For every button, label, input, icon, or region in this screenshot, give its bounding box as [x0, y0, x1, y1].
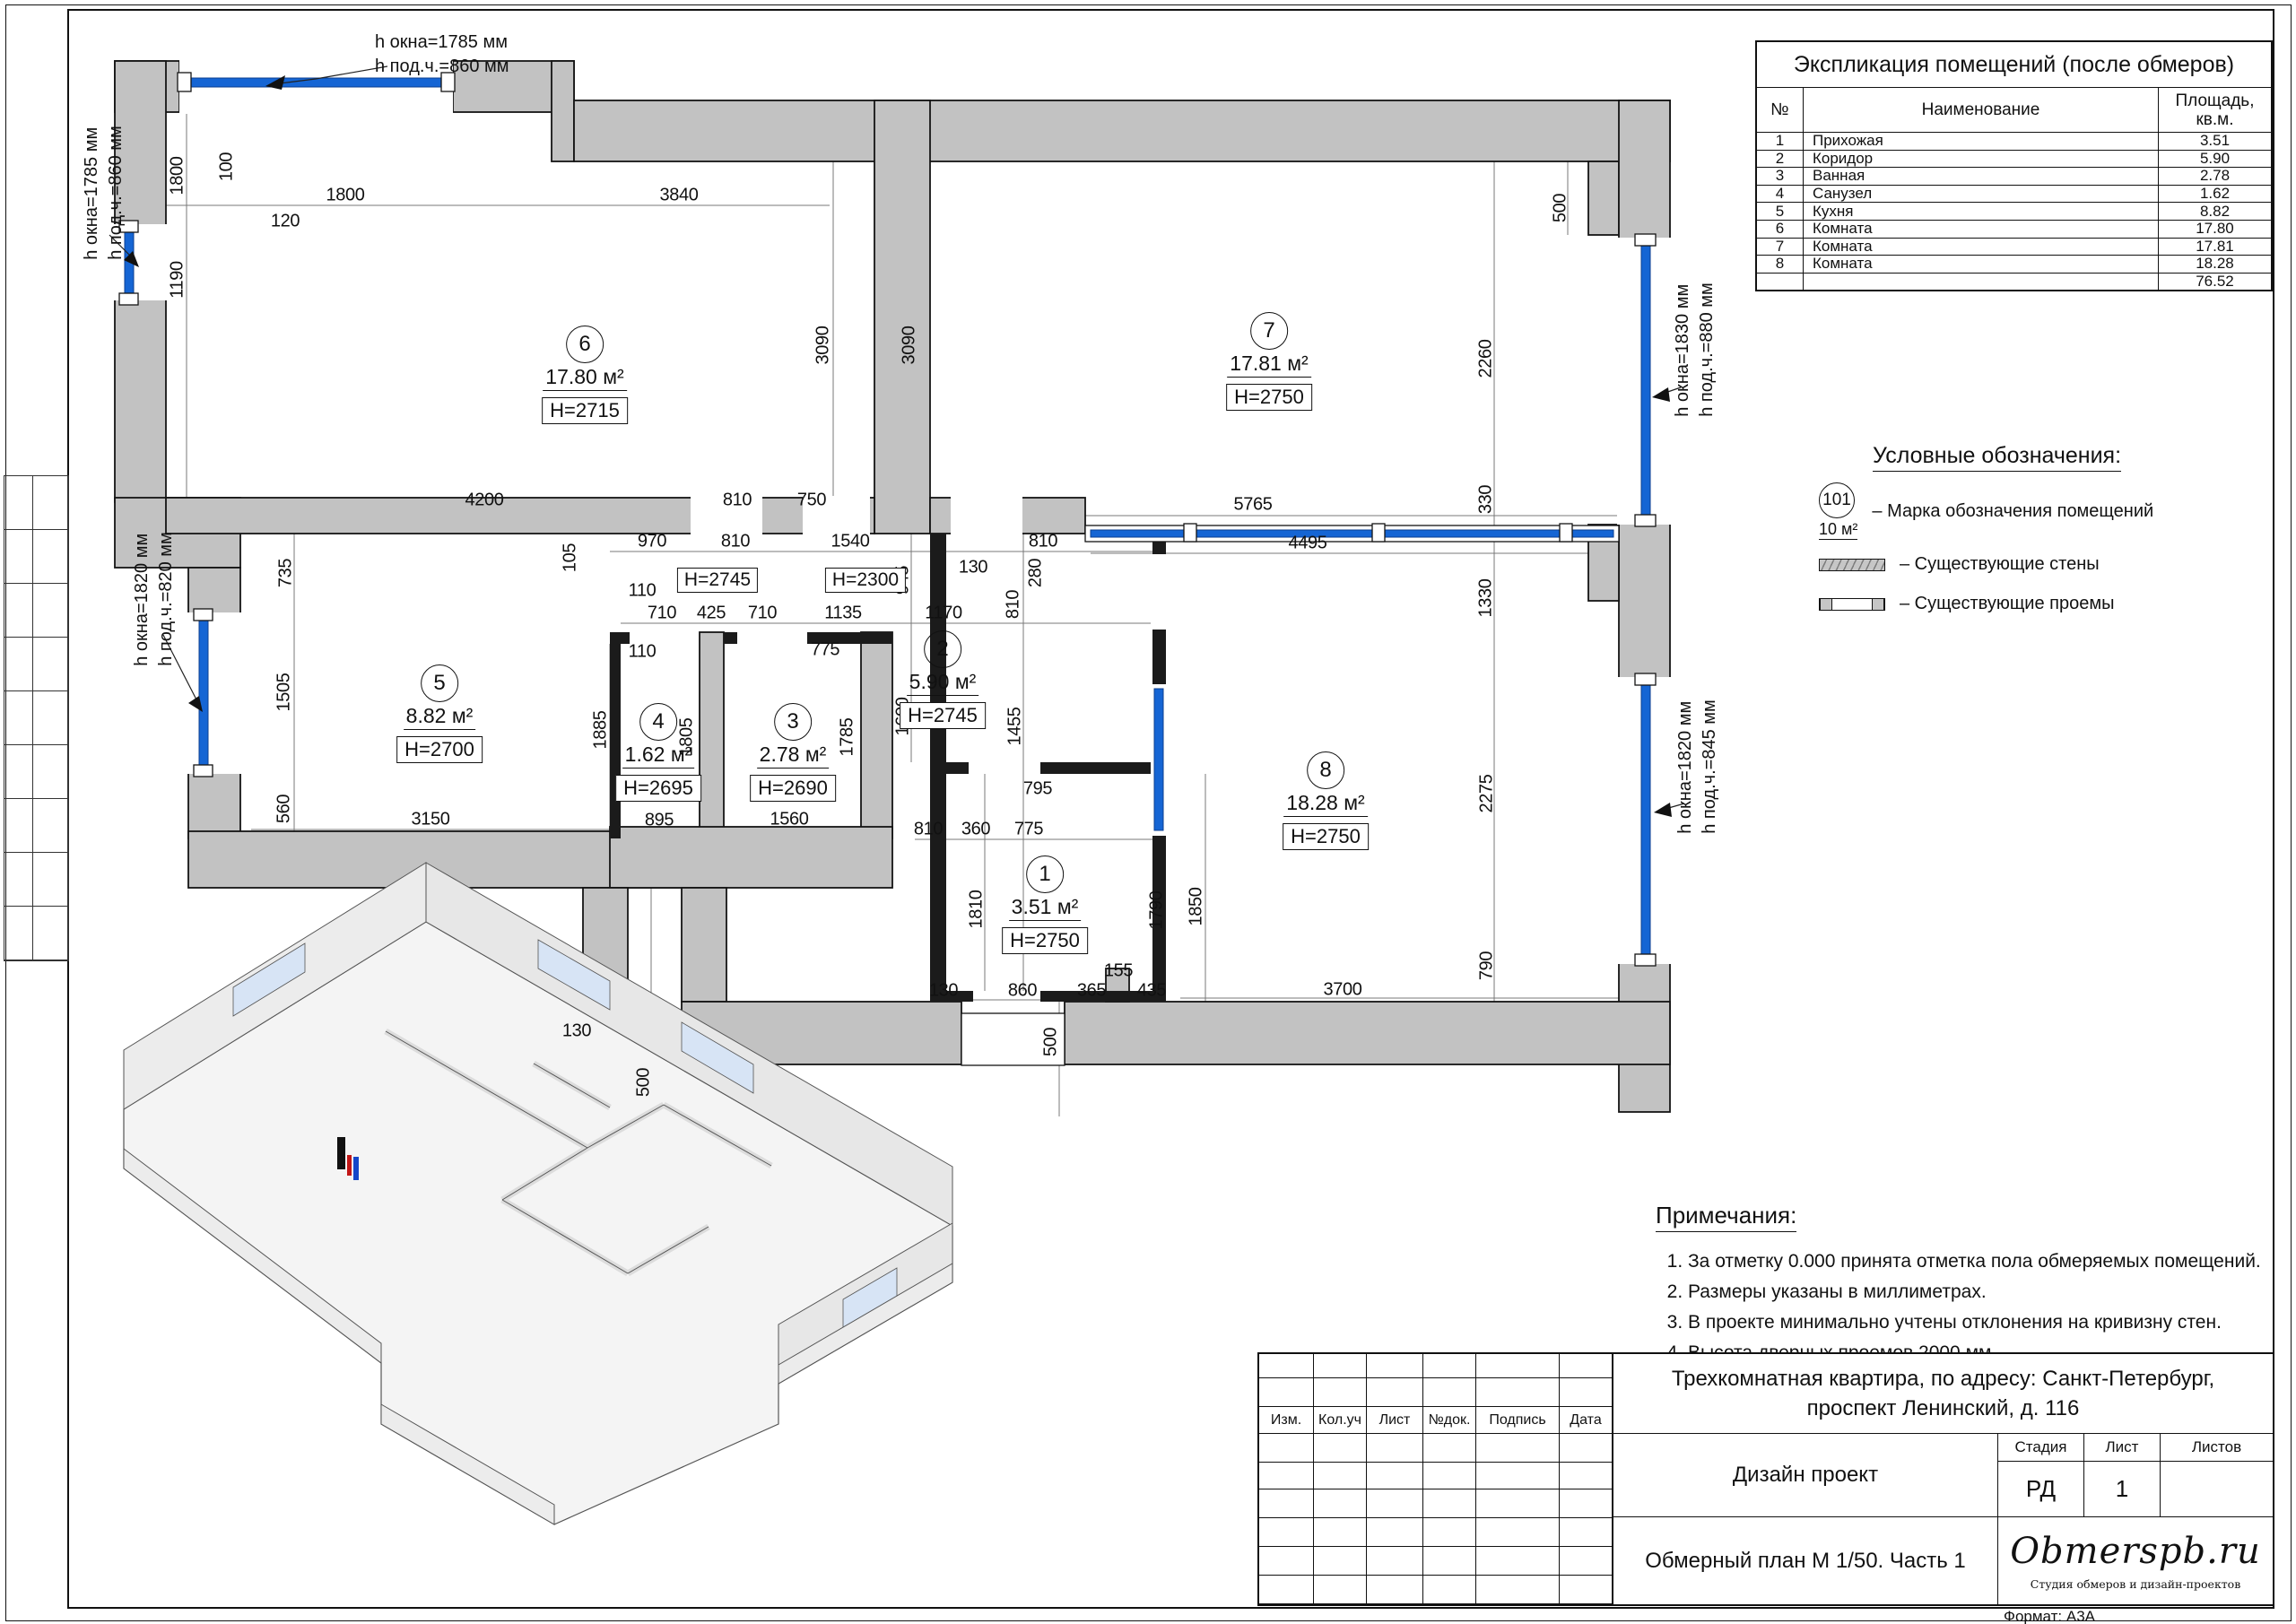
dimension-label: 3090 [900, 326, 920, 365]
window-note-line: h окна=1820 мм [1674, 699, 1698, 834]
cell-num: 2 [1757, 151, 1804, 169]
dimension-label: 1800 [326, 186, 365, 206]
dimension-label: 1190 [168, 261, 188, 298]
cell-area: 18.28 [2159, 256, 2271, 274]
revision-cell [1560, 1489, 1613, 1518]
dimension-label: 425 [697, 604, 726, 624]
dimension-label: 365 [1077, 981, 1106, 1002]
table-row: 2Коридор5.90 [1757, 151, 2271, 169]
cell-area: 2.78 [2159, 168, 2271, 186]
window-height-note: h окна=1785 ммh под.ч.=860 мм [375, 30, 509, 79]
revision-cell [1476, 1489, 1560, 1518]
room-label: 617.80 м²H=2715 [542, 326, 628, 424]
cell-name: Комната [1804, 239, 2159, 256]
sheets-label: Листов [2160, 1434, 2273, 1462]
studio-logo: Obmerspb.ru Студия обмеров и дизайн-прое… [1997, 1517, 2273, 1604]
revision-cell [1476, 1463, 1560, 1489]
dimension-label: 110 [629, 642, 657, 663]
revision-header-cell: Лист [1367, 1407, 1423, 1434]
cell-num: 4 [1757, 186, 1804, 204]
dimension-label: 5765 [1234, 495, 1273, 516]
room-height: H=2750 [1283, 823, 1369, 850]
dimension-label: 3090 [813, 326, 834, 365]
room-area: 3.51 м² [1009, 895, 1082, 921]
dimension-label: 810 [723, 491, 752, 511]
room-area: 5.90 м² [907, 670, 979, 696]
sheet-label: Лист [2083, 1434, 2160, 1462]
window-height-note: h окна=1820 ммh под.ч.=820 мм [130, 532, 178, 666]
dimension-label: 280 [1026, 559, 1047, 587]
revision-cell [1423, 1463, 1476, 1489]
revision-cell [1367, 1518, 1423, 1547]
room-number: 4 [639, 703, 677, 741]
notes-list: За отметку 0.000 принята отметка пола об… [1656, 1246, 2283, 1368]
table-total-row: 76.52 [1757, 274, 2271, 291]
format-label: Формат: А3А [2004, 1608, 2095, 1624]
table-row: 6Комната17.80 [1757, 221, 2271, 239]
legend-item-mark: 101 10 м² – Марка обозначения помещений [1819, 482, 2153, 540]
room-number: 1 [1026, 855, 1064, 893]
height-box: H=2300 [825, 568, 906, 593]
revision-cell [1423, 1547, 1476, 1576]
dimension-label: 810 [1029, 532, 1057, 552]
object-title: Трехкомнатная квартира, по адресу: Санкт… [1613, 1354, 2273, 1434]
cell-num: 3 [1757, 168, 1804, 186]
table-row: 3Ванная2.78 [1757, 168, 2271, 186]
window-note-line: h окна=1785 мм [375, 30, 509, 55]
revision-cell [1476, 1547, 1560, 1576]
room-height: H=2745 [900, 702, 986, 729]
revision-cell [1560, 1378, 1613, 1407]
height-box: H=2745 [677, 568, 758, 593]
total-area: 76.52 [2159, 274, 2271, 291]
revision-cell [1423, 1576, 1476, 1604]
revision-cell [1476, 1576, 1560, 1604]
dimension-label: 775 [1014, 820, 1043, 840]
cell-area: 3.51 [2159, 133, 2271, 151]
dimension-label: 790 [1477, 951, 1498, 980]
cell-empty [1757, 274, 1804, 291]
existing-wall-icon [1819, 559, 1885, 571]
window-note-line: h окна=1785 мм [80, 126, 104, 260]
dimension-label: 710 [748, 604, 777, 624]
room-height: H=2690 [750, 775, 836, 802]
dimension-label: 1850 [1187, 888, 1207, 926]
dimension-label: 500 [1041, 1028, 1062, 1056]
dimension-label: 2260 [1476, 340, 1497, 378]
cell-name: Коридор [1804, 151, 2159, 169]
room-height: H=2750 [1002, 927, 1088, 954]
revision-cell [1367, 1378, 1423, 1407]
dimension-label: 710 [648, 604, 676, 624]
notes-title: Примечания: [1656, 1202, 1796, 1232]
room-number: 3 [774, 703, 812, 741]
dimension-label: 500 [1551, 194, 1571, 222]
dimension-label: 4200 [465, 491, 504, 511]
dimension-label: 810 [1004, 590, 1024, 619]
revision-cell [1423, 1354, 1476, 1378]
revision-cell [1314, 1354, 1367, 1378]
revision-cell [1367, 1489, 1423, 1518]
room-height: H=2750 [1226, 384, 1312, 411]
revision-cell [1314, 1576, 1367, 1604]
revision-cell [1259, 1378, 1314, 1407]
dimension-label: 130 [959, 558, 987, 578]
legend-title: Условные обозначения: [1873, 443, 2121, 472]
revision-cell [1367, 1434, 1423, 1463]
revision-cell [1259, 1489, 1314, 1518]
dimension-label: 735 [276, 559, 297, 587]
dimension-label: 810 [721, 532, 750, 552]
legend-item-walls: – Существующие стены [1819, 554, 2100, 575]
table-row: 5Кухня8.82 [1757, 203, 2271, 221]
window-note-line: h под.ч.=860 мм [375, 55, 509, 79]
revision-cell [1314, 1378, 1367, 1407]
dimension-label: 130 [929, 981, 958, 1002]
table-row: 7Комната17.81 [1757, 239, 2271, 256]
revision-header-cell: №док. [1423, 1407, 1476, 1434]
cell-name: Кухня [1804, 203, 2159, 221]
col-area-header: Площадь, кв.м. [2159, 88, 2271, 133]
dimension-label: 860 [1008, 981, 1037, 1002]
room-label: 25.90 м²H=2745 [900, 630, 986, 729]
room-label: 41.62 м²H=2695 [615, 703, 701, 802]
dimension-label: 1790 [1147, 891, 1168, 930]
revision-cell [1259, 1576, 1314, 1604]
col-name-header: Наименование [1804, 88, 2159, 133]
room-number: 5 [421, 664, 458, 702]
table-row: 8Комната18.28 [1757, 256, 2271, 274]
dimension-label: 970 [638, 532, 666, 552]
revision-cell [1367, 1354, 1423, 1378]
note-item: За отметку 0.000 принята отметка пола об… [1688, 1246, 2283, 1277]
dimension-label: 1135 [824, 604, 861, 624]
dimension-label: 750 [797, 491, 826, 511]
room-label: 32.78 м²H=2690 [750, 703, 836, 802]
dimension-label: 1885 [591, 711, 612, 750]
dimension-label: 1170 [925, 604, 961, 624]
dimension-label: 3840 [660, 186, 699, 206]
revision-cell [1476, 1518, 1560, 1547]
room-area: 2.78 м² [757, 743, 830, 769]
cell-num: 7 [1757, 239, 1804, 256]
window-note-line: h окна=1830 мм [1671, 282, 1695, 417]
room-number: 8 [1307, 751, 1344, 789]
notes: Примечания: За отметку 0.000 принята отм… [1656, 1202, 2283, 1368]
revision-header-cell: Кол.уч [1314, 1407, 1367, 1434]
project-type: Дизайн проект [1613, 1434, 1997, 1517]
window-note-line: h под.ч.=880 мм [1695, 282, 1719, 417]
dimension-label: 360 [961, 820, 990, 840]
revision-cell [1560, 1434, 1613, 1463]
dimension-label: 435 [1137, 981, 1166, 1002]
dimension-label: 330 [1476, 485, 1497, 514]
sheet-number: 1 [2083, 1462, 2160, 1517]
dimension-label: 1455 [1005, 708, 1026, 746]
dimension-label: 3150 [412, 810, 450, 830]
revision-cell [1476, 1354, 1560, 1378]
revision-cell [1476, 1378, 1560, 1407]
room-height: H=2695 [615, 775, 701, 802]
dimension-label: 810 [914, 820, 943, 840]
revision-cell [1423, 1489, 1476, 1518]
cell-num: 8 [1757, 256, 1804, 274]
cell-num: 1 [1757, 133, 1804, 151]
revision-cell [1314, 1463, 1367, 1489]
dimension-label: 775 [811, 640, 839, 661]
stage-value: РД [1997, 1462, 2083, 1517]
logo-text: Obmerspb.ru [2010, 1531, 2260, 1572]
room-area: 18.28 м² [1283, 791, 1367, 817]
room-area: 1.62 м² [622, 743, 695, 769]
dimension-label: 105 [561, 543, 581, 572]
dimension-label: 100 [217, 152, 238, 181]
dimension-label: 3700 [1324, 980, 1362, 1001]
dimension-label: 1785 [838, 718, 858, 757]
cell-empty [1804, 274, 2159, 291]
explication-title: Экспликация помещений (после обмеров) [1757, 42, 2271, 88]
window-note-line: h под.ч.=820 мм [154, 532, 178, 666]
dimension-label: 795 [1023, 779, 1052, 800]
cell-name: Санузел [1804, 186, 2159, 204]
note-item: В проекте минимально учтены отклонения н… [1688, 1307, 2283, 1338]
room-area: 17.80 м² [543, 365, 626, 391]
dimension-label: 560 [274, 795, 295, 823]
revision-header-cell: Подпись [1476, 1407, 1560, 1434]
room-label: 818.28 м²H=2750 [1283, 751, 1369, 850]
revision-cell [1314, 1518, 1367, 1547]
existing-opening-icon [1819, 598, 1885, 611]
cell-num: 6 [1757, 221, 1804, 239]
dimension-label: 1330 [1476, 579, 1497, 618]
logo-subtitle: Студия обмеров и дизайн-проектов [2031, 1577, 2240, 1591]
title-block: Изм.Кол.учЛист№док.ПодписьДата Трехкомна… [1257, 1352, 2274, 1606]
dimension-label: 1540 [831, 532, 870, 552]
dimension-label: 895 [645, 811, 674, 831]
revision-cell [1476, 1434, 1560, 1463]
revision-cell [1560, 1354, 1613, 1378]
document-title: Обмерный план М 1/50. Часть 1 [1613, 1517, 1997, 1604]
window-height-note: h окна=1785 ммh под.ч.=860 мм [80, 126, 128, 260]
revision-cell [1314, 1489, 1367, 1518]
legend-item-openings: – Существующие проемы [1819, 594, 2114, 614]
room-mark-area: 10 м² [1819, 520, 1857, 540]
revision-cell [1560, 1518, 1613, 1547]
drawing-sheet: 1800384012010018001190420081075030903090… [0, 0, 2296, 1624]
cell-name: Комната [1804, 256, 2159, 274]
window-note-line: h окна=1820 мм [130, 532, 154, 666]
cell-area: 17.81 [2159, 239, 2271, 256]
dimension-label: 1560 [770, 810, 809, 830]
dimension-label: 500 [634, 1068, 655, 1097]
dimension-label: 1810 [967, 890, 987, 929]
table-row: 4Санузел1.62 [1757, 186, 2271, 204]
cell-area: 8.82 [2159, 203, 2271, 221]
revision-cell [1367, 1547, 1423, 1576]
window-height-note: h окна=1830 ммh под.ч.=880 мм [1671, 282, 1719, 417]
dimension-label: 155 [1104, 961, 1133, 982]
dimension-label: 1800 [168, 157, 188, 195]
revision-cell [1259, 1518, 1314, 1547]
explication-table: Экспликация помещений (после обмеров) № … [1755, 40, 2273, 291]
revision-cell [1367, 1576, 1423, 1604]
revision-cell [1560, 1576, 1613, 1604]
cell-num: 5 [1757, 203, 1804, 221]
room-number: 2 [924, 630, 961, 668]
revision-cell [1259, 1434, 1314, 1463]
room-height: H=2715 [542, 397, 628, 424]
note-item: Размеры указаны в миллиметрах. [1688, 1277, 2283, 1307]
revision-cell [1314, 1434, 1367, 1463]
room-label: 58.82 м²H=2700 [396, 664, 483, 763]
room-label: 717.81 м²H=2750 [1226, 312, 1312, 411]
dimension-label: 120 [271, 212, 300, 232]
room-label: 13.51 м²H=2750 [1002, 855, 1088, 954]
window-note-line: h под.ч.=860 мм [104, 126, 128, 260]
room-number: 6 [566, 326, 604, 363]
revision-header-cell: Дата [1560, 1407, 1613, 1434]
room-number: 7 [1250, 312, 1288, 350]
col-num-header: № [1757, 88, 1804, 133]
sheets-total [2160, 1462, 2273, 1517]
revision-cell [1560, 1463, 1613, 1489]
stage-label: Стадия [1997, 1434, 2083, 1462]
revision-cell [1423, 1434, 1476, 1463]
revision-cell [1423, 1518, 1476, 1547]
dimension-label: 4495 [1289, 534, 1327, 554]
revision-cell [1259, 1354, 1314, 1378]
cell-name: Прихожая [1804, 133, 2159, 151]
room-mark-icon: 101 [1819, 482, 1855, 518]
explication-header: № Наименование Площадь, кв.м. [1757, 88, 2271, 133]
cell-name: Ванная [1804, 168, 2159, 186]
dimension-label: 110 [629, 581, 657, 602]
dimension-label: 130 [562, 1021, 591, 1042]
cell-area: 5.90 [2159, 151, 2271, 169]
room-height: H=2700 [396, 736, 483, 763]
revision-cell [1259, 1547, 1314, 1576]
room-area: 8.82 м² [404, 704, 476, 730]
revision-cell [1423, 1378, 1476, 1407]
window-height-note: h окна=1820 ммh под.ч.=845 мм [1674, 699, 1722, 834]
table-row: 1Прихожая3.51 [1757, 133, 2271, 151]
legend: Условные обозначения: 101 10 м² – Марка … [1819, 443, 2272, 472]
revision-cell [1367, 1463, 1423, 1489]
cell-area: 1.62 [2159, 186, 2271, 204]
window-note-line: h под.ч.=845 мм [1698, 699, 1722, 834]
explication-rows: 1Прихожая3.512Коридор5.903Ванная2.784Сан… [1757, 133, 2271, 290]
revision-cell [1560, 1547, 1613, 1576]
dimension-label: 2275 [1477, 775, 1498, 813]
cell-name: Комната [1804, 221, 2159, 239]
dimension-label: 1505 [274, 673, 295, 712]
revision-cell [1314, 1547, 1367, 1576]
cell-area: 17.80 [2159, 221, 2271, 239]
room-area: 17.81 м² [1227, 352, 1310, 378]
revision-cell [1259, 1463, 1314, 1489]
revision-header-cell: Изм. [1259, 1407, 1314, 1434]
